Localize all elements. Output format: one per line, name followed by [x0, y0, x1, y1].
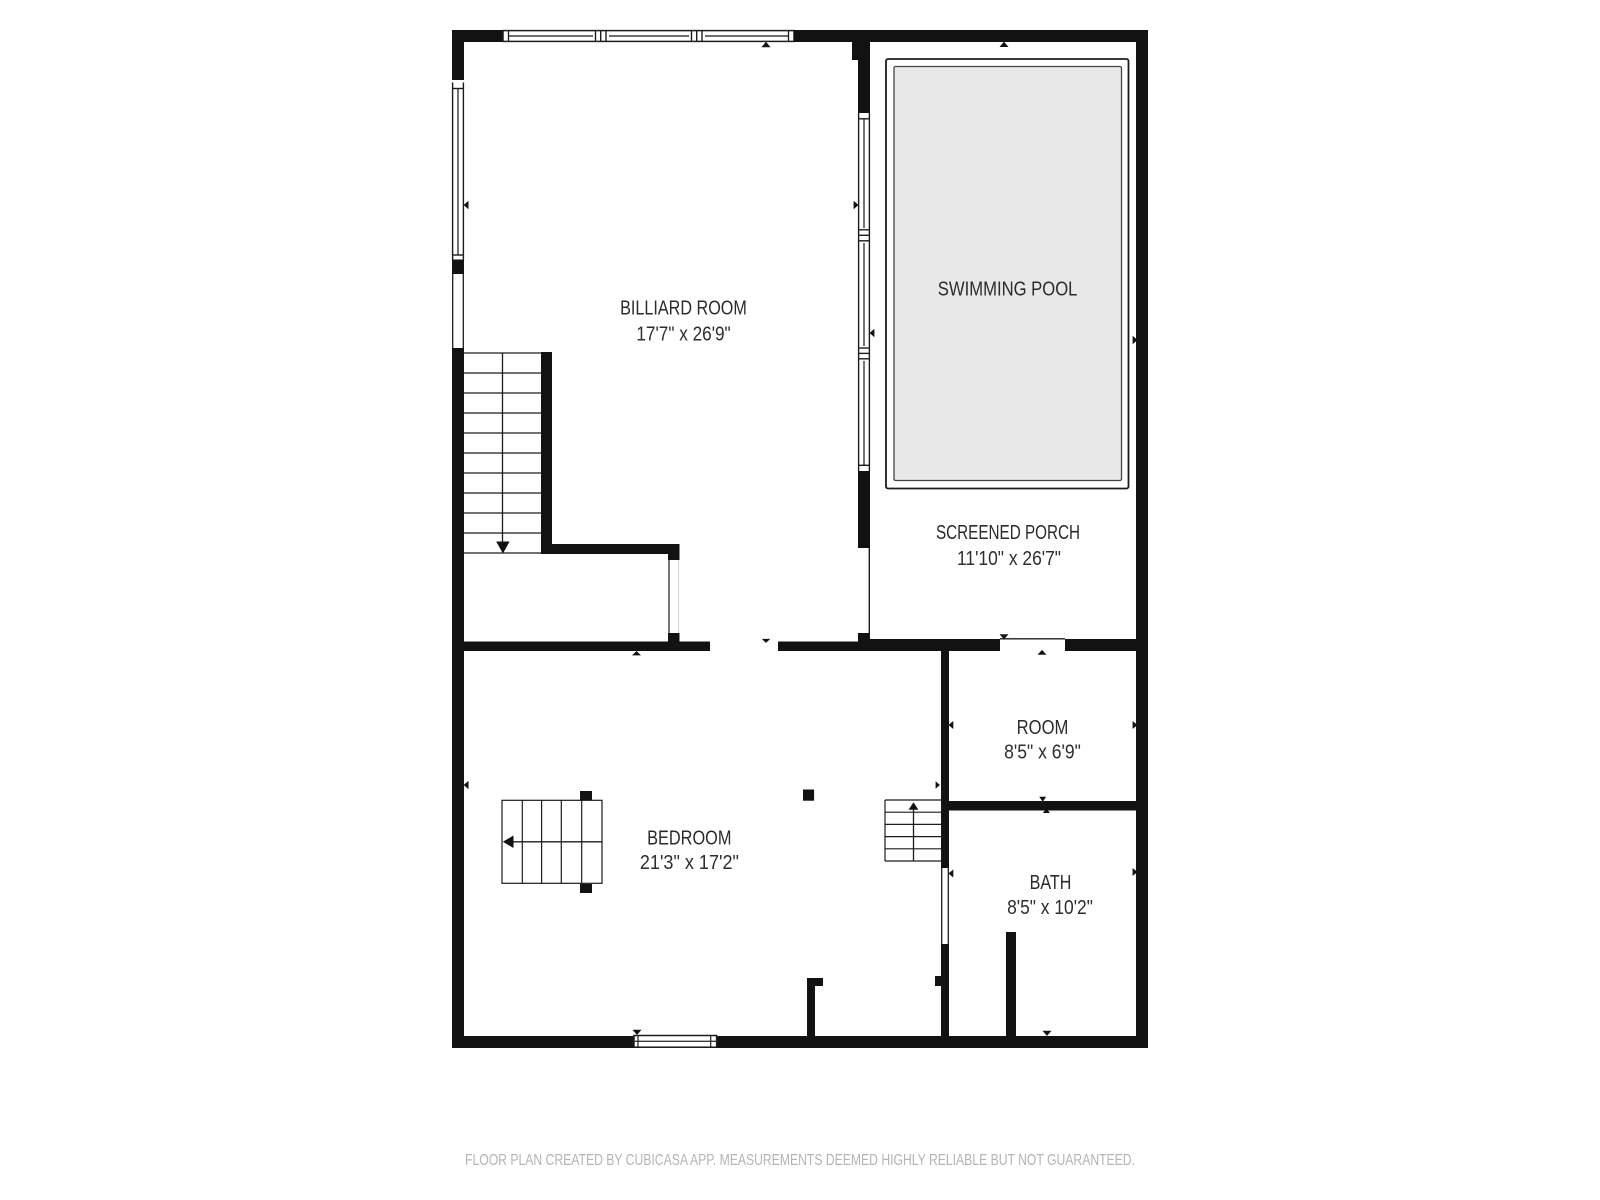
- svg-text:SWIMMING POOL: SWIMMING POOL: [938, 278, 1078, 300]
- svg-text:8'5" x 6'9": 8'5" x 6'9": [1004, 742, 1081, 764]
- svg-text:11'10" x 26'7": 11'10" x 26'7": [957, 548, 1061, 570]
- svg-text:SCREENED PORCH: SCREENED PORCH: [936, 522, 1080, 544]
- svg-text:BEDROOM: BEDROOM: [647, 828, 731, 850]
- svg-text:21'3" x 17'2": 21'3" x 17'2": [640, 852, 739, 874]
- svg-text:BILLIARD ROOM: BILLIARD ROOM: [620, 297, 747, 319]
- svg-text:BATH: BATH: [1030, 872, 1072, 894]
- svg-text:8'5" x 10'2": 8'5" x 10'2": [1007, 897, 1093, 919]
- svg-text:ROOM: ROOM: [1017, 717, 1069, 739]
- svg-text:FLOOR PLAN CREATED BY CUBICASA: FLOOR PLAN CREATED BY CUBICASA APP. MEAS…: [465, 1152, 1135, 1169]
- svg-text:17'7" x 26'9": 17'7" x 26'9": [636, 323, 730, 345]
